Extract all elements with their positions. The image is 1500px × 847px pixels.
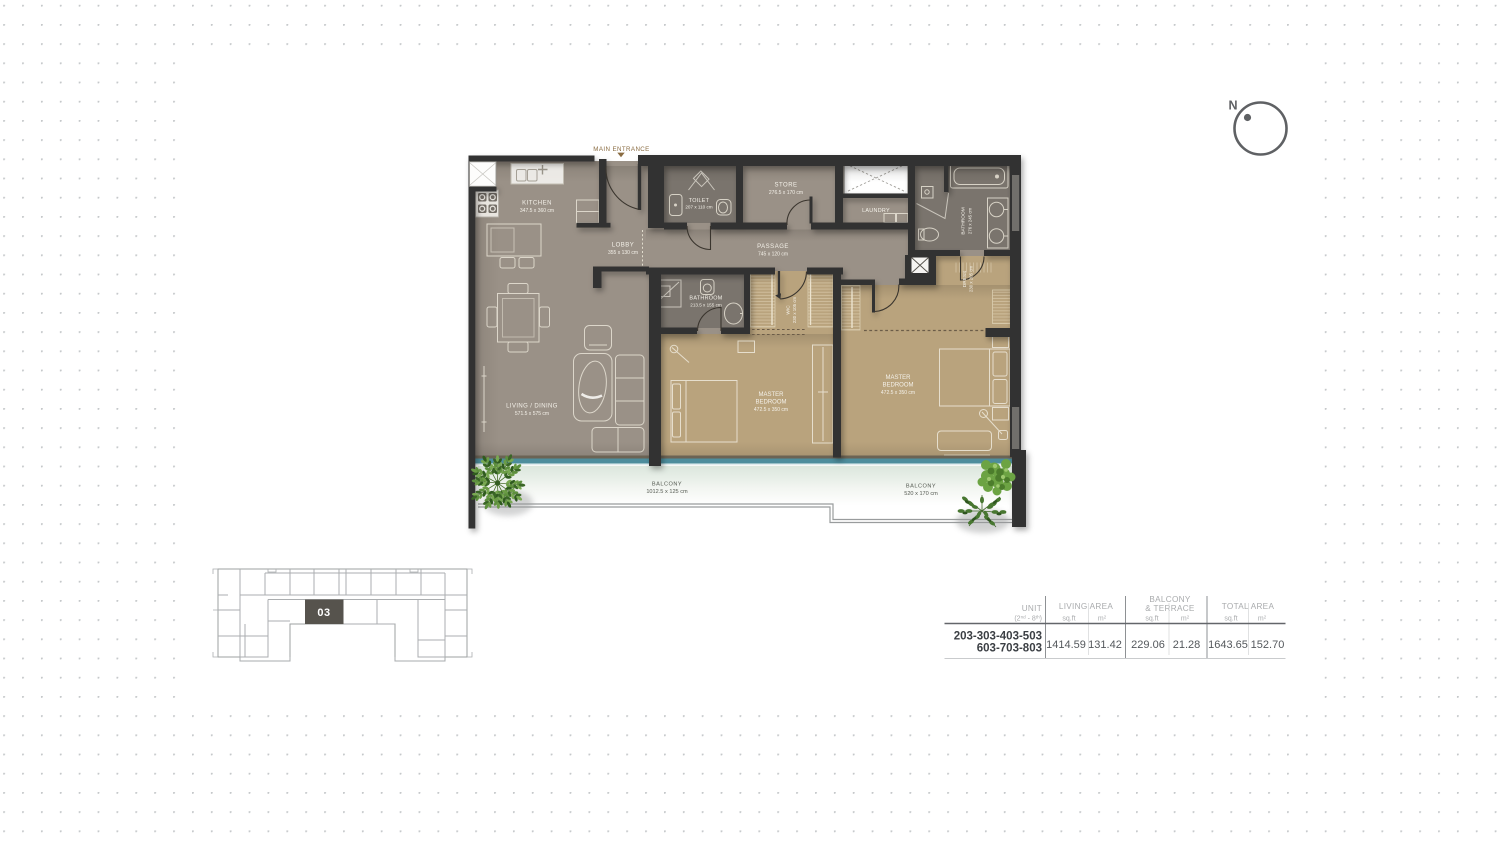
svg-text:276 x 245 cm: 276 x 245 cm: [968, 207, 973, 234]
svg-text:LAUNDRY: LAUNDRY: [862, 208, 890, 214]
svg-text:230 x 105 cm: 230 x 105 cm: [792, 296, 797, 323]
svg-text:131.42: 131.42: [1088, 639, 1122, 651]
svg-text:BALCONY: BALCONY: [1149, 595, 1190, 604]
svg-text:1414.59: 1414.59: [1046, 639, 1086, 651]
svg-text:sq.ft: sq.ft: [1224, 616, 1237, 623]
svg-text:276.5 x 170 cm: 276.5 x 170 cm: [769, 190, 803, 196]
svg-text:472.5 x 350 cm: 472.5 x 350 cm: [881, 390, 915, 396]
svg-text:BALCONY: BALCONY: [906, 484, 936, 490]
svg-text:229.06: 229.06: [1131, 639, 1165, 651]
svg-text:520 x 170 cm: 520 x 170 cm: [904, 491, 938, 497]
svg-text:WIC: WIC: [786, 305, 792, 315]
svg-text:LIVING AREA: LIVING AREA: [1059, 602, 1114, 611]
svg-text:347.5 x 360 cm: 347.5 x 360 cm: [520, 208, 554, 214]
svg-text:BALCONY: BALCONY: [652, 482, 682, 488]
svg-text:745 x 120 cm: 745 x 120 cm: [758, 252, 788, 258]
svg-text:sq.ft: sq.ft: [1062, 616, 1075, 623]
svg-text:230 x 205 cm: 230 x 205 cm: [969, 265, 974, 292]
svg-text:203-303-403-503: 203-303-403-503: [954, 631, 1042, 643]
svg-text:571.5 x 575 cm: 571.5 x 575 cm: [515, 411, 549, 417]
svg-text:BATHROOM: BATHROOM: [689, 296, 722, 302]
svg-text:603-703-803: 603-703-803: [977, 643, 1042, 655]
svg-text:LOBBY: LOBBY: [612, 243, 635, 249]
svg-text:KITCHEN: KITCHEN: [522, 201, 552, 207]
svg-text:152.70: 152.70: [1251, 639, 1285, 651]
svg-text:UNIT: UNIT: [1022, 604, 1042, 613]
svg-text:STORE: STORE: [774, 183, 797, 189]
svg-text:BEDROOM: BEDROOM: [755, 400, 786, 406]
svg-text:355 x 130 cm: 355 x 130 cm: [608, 250, 638, 256]
svg-text:LIVING / DINING: LIVING / DINING: [506, 404, 558, 410]
svg-text:1012.5 x 125 cm: 1012.5 x 125 cm: [646, 489, 688, 495]
svg-text:1643.65: 1643.65: [1208, 639, 1248, 651]
svg-text:N: N: [1228, 99, 1237, 113]
svg-text:MASTER: MASTER: [885, 375, 911, 381]
svg-text:03: 03: [317, 607, 330, 619]
svg-text:21.28: 21.28: [1173, 639, 1201, 651]
svg-text:PASSAGE: PASSAGE: [757, 244, 789, 250]
svg-text:sq.ft: sq.ft: [1145, 616, 1158, 623]
svg-text:BATHROOM: BATHROOM: [961, 207, 967, 234]
svg-text:213.5 x 155 cm: 213.5 x 155 cm: [690, 303, 722, 308]
svg-text:& TERRACE: & TERRACE: [1145, 604, 1195, 613]
svg-text:MAIN ENTRANCE: MAIN ENTRANCE: [593, 146, 649, 153]
svg-text:472.5 x 350 cm: 472.5 x 350 cm: [754, 407, 788, 413]
svg-text:MASTER: MASTER: [758, 392, 784, 398]
svg-text:TOILET: TOILET: [689, 198, 710, 204]
svg-text:BEDROOM: BEDROOM: [882, 383, 913, 389]
svg-text:207 x 110 cm: 207 x 110 cm: [685, 205, 712, 210]
svg-text:DRESS: DRESS: [962, 271, 968, 288]
